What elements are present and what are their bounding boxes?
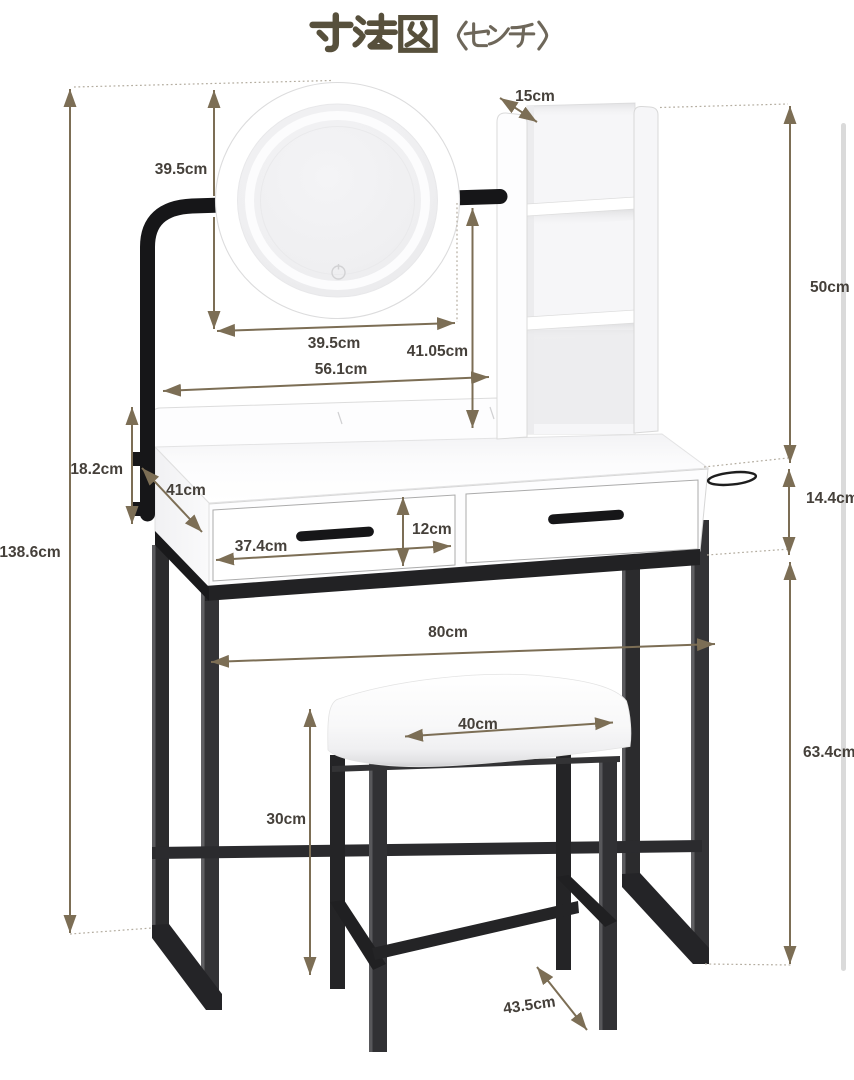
svg-text:39.5cm: 39.5cm bbox=[308, 335, 361, 352]
svg-text:50cm: 50cm bbox=[810, 279, 850, 296]
svg-text:18.2cm: 18.2cm bbox=[70, 461, 123, 478]
svg-text:15cm: 15cm bbox=[515, 88, 555, 105]
svg-text:138.6cm: 138.6cm bbox=[0, 544, 61, 561]
svg-text:63.4cm: 63.4cm bbox=[803, 744, 854, 761]
svg-text:41.05cm: 41.05cm bbox=[407, 343, 468, 360]
svg-text:56.1cm: 56.1cm bbox=[315, 361, 368, 378]
svg-text:12cm: 12cm bbox=[412, 521, 452, 538]
svg-text:37.4cm: 37.4cm bbox=[235, 538, 288, 555]
svg-text:80cm: 80cm bbox=[428, 624, 468, 641]
svg-text:40cm: 40cm bbox=[458, 716, 498, 733]
svg-text:41cm: 41cm bbox=[166, 482, 206, 499]
svg-text:39.5cm: 39.5cm bbox=[155, 161, 208, 178]
svg-text:14.4cm: 14.4cm bbox=[806, 490, 854, 507]
svg-text:30cm: 30cm bbox=[266, 811, 306, 828]
